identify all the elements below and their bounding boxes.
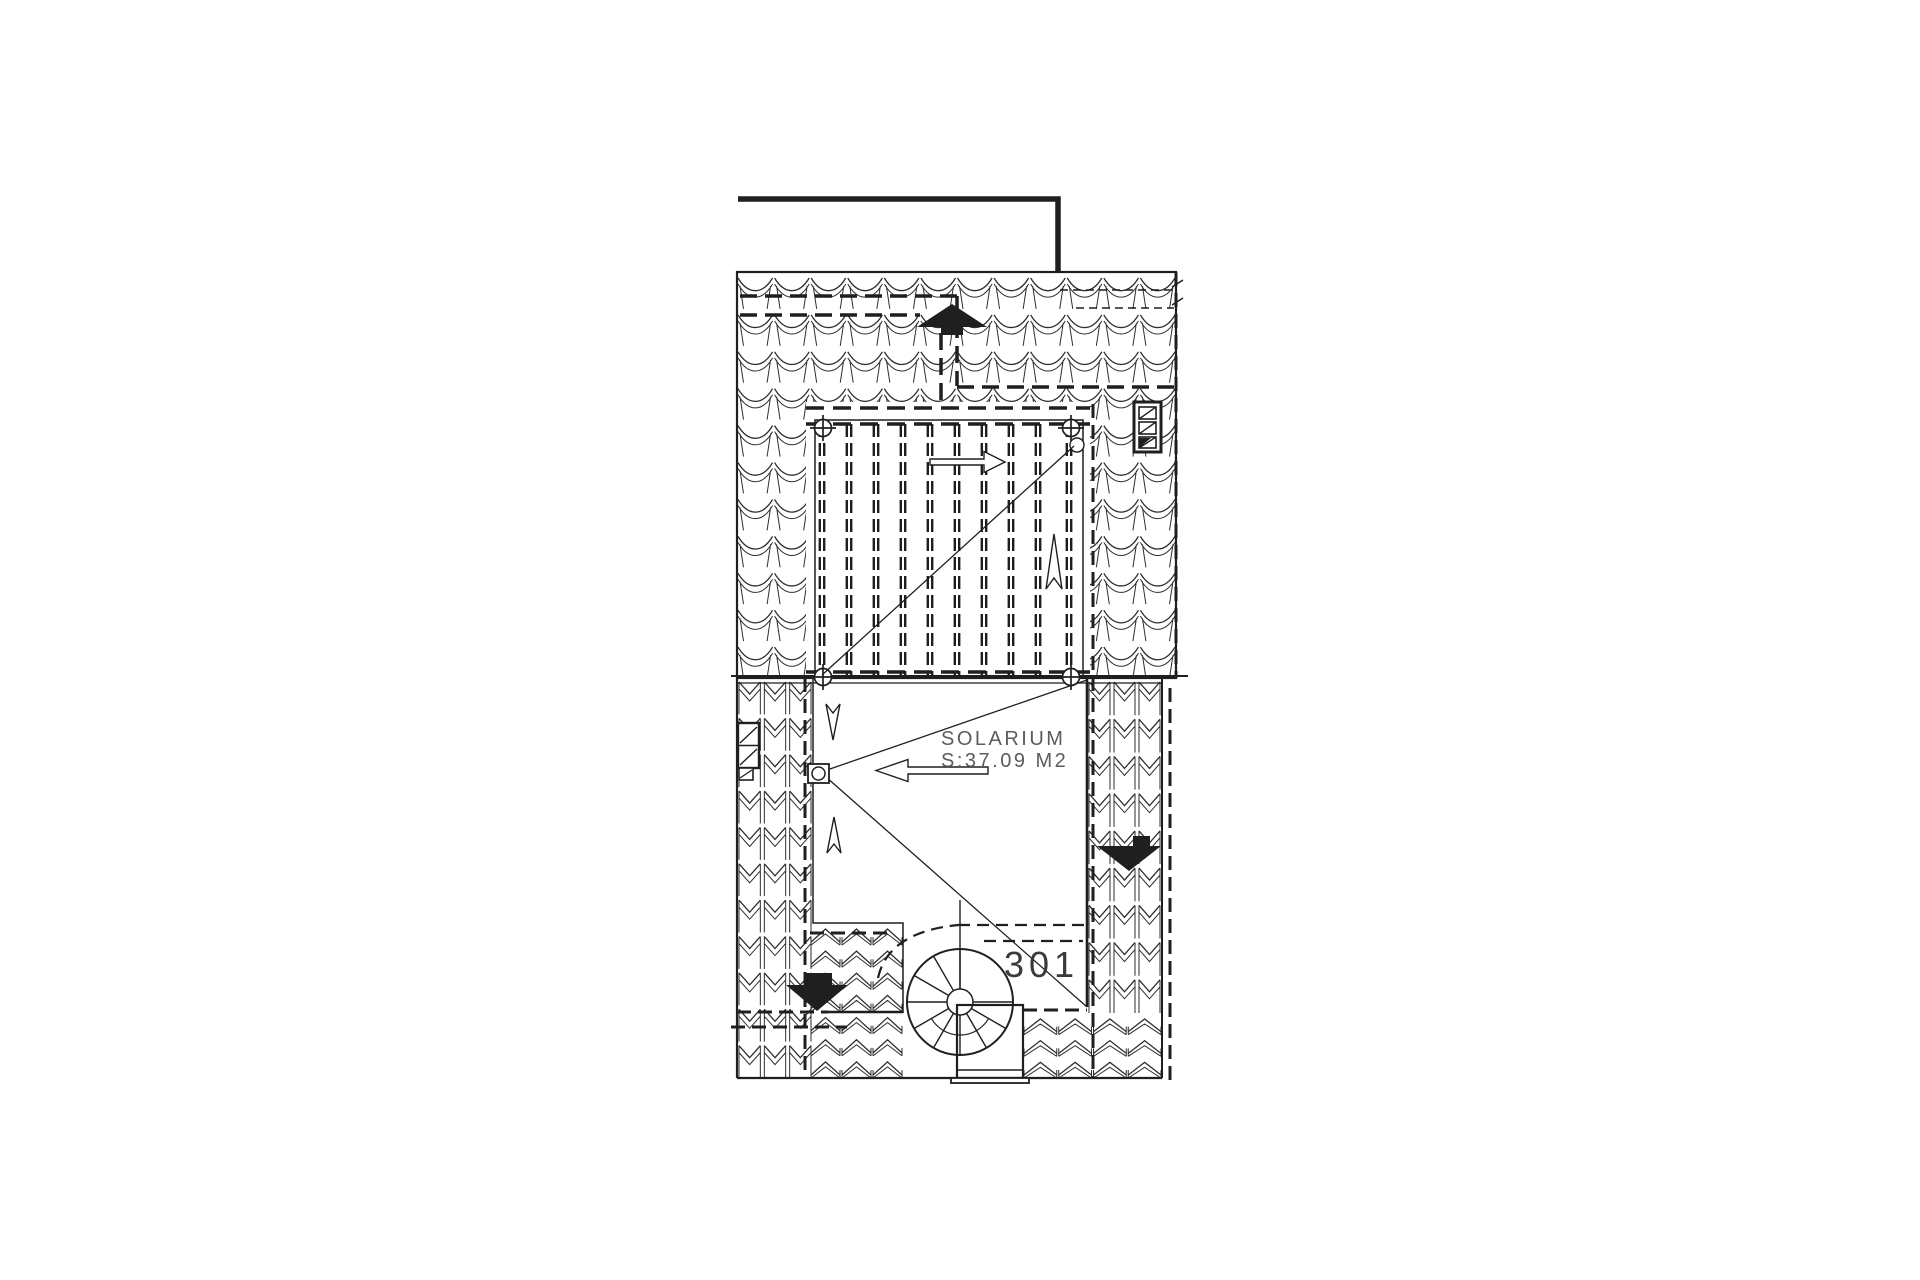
thin-dashed-lines (1060, 290, 1174, 308)
survey-point-marker-icon (808, 764, 829, 783)
roof-plan-svg: SOLARIUM S:37.09 M2 301 (0, 0, 1920, 1280)
parapet-wall-line (738, 199, 1058, 272)
drawing-canvas: SOLARIUM S:37.09 M2 301 (0, 0, 1920, 1280)
solarium-area-label: S:37.09 M2 (941, 750, 1068, 772)
pergola-zone (806, 402, 1090, 678)
left-vent-boxes-icon (738, 723, 759, 780)
room-number-label: 301 (1004, 944, 1079, 985)
flow-arrow-up-filled-icon (917, 304, 987, 335)
vent-grille-icon (1134, 402, 1161, 452)
solarium-label: SOLARIUM (941, 728, 1065, 750)
